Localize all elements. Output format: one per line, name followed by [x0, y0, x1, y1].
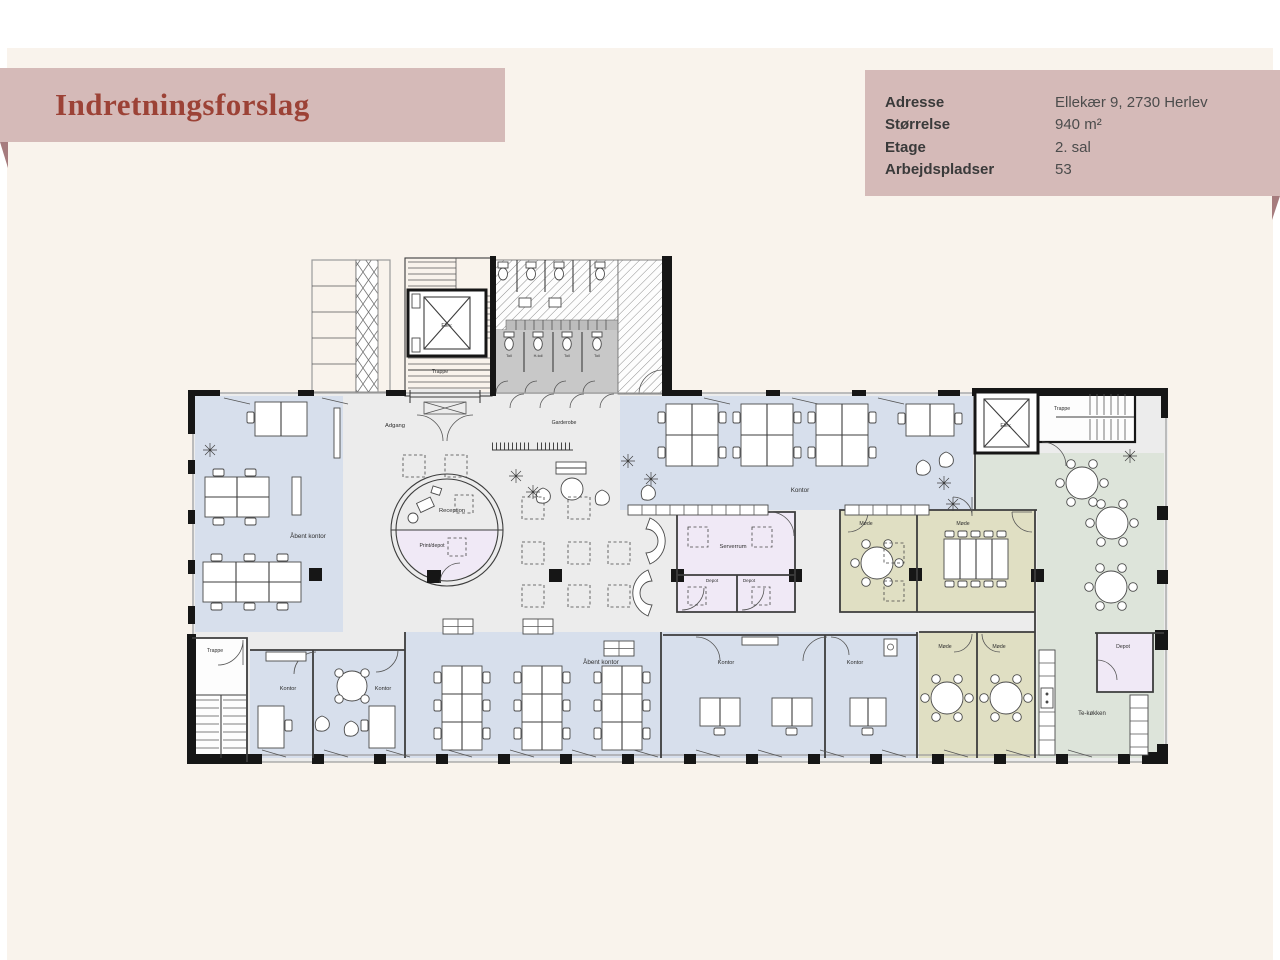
room-label: Depot	[706, 578, 719, 583]
room-label: Møde	[938, 644, 951, 650]
property-info-box: Adresse Ellekær 9, 2730 Herlev Størrelse…	[865, 70, 1280, 196]
fire-escape	[356, 260, 378, 392]
room-label: Adgang	[385, 423, 405, 429]
info-row-etage: Etage 2. sal	[885, 136, 1280, 159]
infobox-fold-decoration	[1272, 196, 1280, 220]
room-label: Toil	[506, 354, 512, 358]
info-label: Arbejdspladser	[885, 161, 1055, 178]
room-label: Print/depot	[419, 543, 445, 549]
hatched-strip	[618, 260, 663, 394]
title-banner: Indretningsforslag	[0, 68, 505, 142]
info-value: 53	[1055, 161, 1072, 178]
room-label: Møde	[956, 521, 969, 527]
room-label: Elev.	[1000, 423, 1011, 429]
room-label: Garderobe	[552, 420, 577, 426]
room-label: Møde	[859, 521, 872, 527]
info-row-adresse: Adresse Ellekær 9, 2730 Herlev	[885, 91, 1280, 114]
room-label: Depot	[743, 578, 756, 583]
info-value: Ellekær 9, 2730 Herlev	[1055, 94, 1208, 111]
info-row-arbejdspladser: Arbejdspladser 53	[885, 159, 1280, 182]
info-label: Størrelse	[885, 116, 1055, 133]
room-label: Depot	[1116, 644, 1130, 650]
floorplan: Elev.TrappeToilH-toilToilToilAdgangGarde…	[185, 252, 1175, 767]
room-label: Trappe	[1054, 406, 1070, 412]
info-label: Etage	[885, 139, 1055, 156]
room-label: Kontor	[375, 686, 392, 692]
room-label: Trappe	[432, 369, 448, 375]
room-label: Elev.	[441, 323, 452, 329]
info-label: Adresse	[885, 94, 1055, 111]
room-label: Toil	[564, 354, 570, 358]
room-label: Kontor	[791, 487, 810, 494]
room-label: Åbent kontor	[290, 531, 326, 540]
slide: Indretningsforslag Adresse Ellekær 9, 27…	[0, 0, 1280, 960]
page-title: Indretningsforslag	[0, 87, 310, 123]
room-label: Møde	[992, 644, 1005, 650]
room-label: Reception	[439, 508, 465, 514]
room-label: Te-køkken	[1078, 711, 1106, 717]
info-value: 940 m²	[1055, 116, 1102, 133]
room-label: Serverrum	[719, 544, 746, 550]
room-label: H-toil	[534, 354, 543, 358]
room-label: Kontor	[280, 686, 297, 692]
room-label: Kontor	[847, 660, 864, 666]
room-label: Åbent kontor	[583, 657, 619, 666]
info-value: 2. sal	[1055, 139, 1091, 156]
room-label: Toil	[594, 354, 600, 358]
room-label: Trappe	[207, 648, 223, 654]
room-label: Kontor	[718, 660, 735, 666]
building-core	[312, 258, 663, 396]
room-depot-br	[1097, 634, 1153, 692]
info-row-storrelse: Størrelse 940 m²	[885, 114, 1280, 137]
